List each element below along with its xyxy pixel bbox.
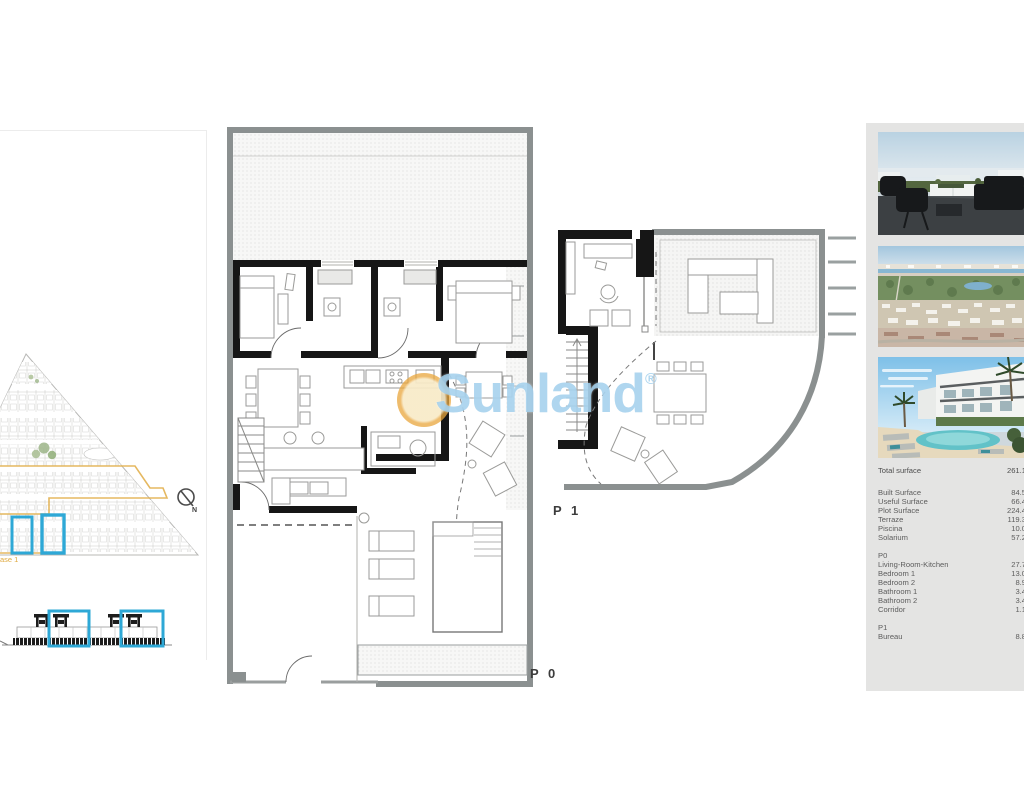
table-row: Living-Room-Kitchen27.7 xyxy=(878,560,1024,569)
row-label: Total surface xyxy=(878,466,921,475)
row-label: Useful Surface xyxy=(878,497,928,506)
walkway xyxy=(358,645,527,675)
ground-floor-label: P 0 xyxy=(530,666,558,681)
row-value: 13.0 xyxy=(1011,569,1024,578)
row-value: 57.2 xyxy=(1011,533,1024,542)
table-row: Terraze119.3 xyxy=(878,515,1024,524)
covered-terrace xyxy=(654,234,822,336)
photo-pool-residences xyxy=(878,357,1024,458)
table-row: Corridor1.1 xyxy=(878,605,1024,614)
stairs-p1 xyxy=(566,339,588,432)
elevation-strip xyxy=(0,598,200,656)
table-row: Built Surface84.5 xyxy=(878,488,1024,497)
row-value: 8.8 xyxy=(1015,632,1024,641)
row-label: Bathroom 2 xyxy=(878,596,917,605)
compass-icon: N xyxy=(178,489,197,514)
table-row: Bureau8.8 xyxy=(878,632,1024,641)
driveway xyxy=(232,516,357,682)
sofa xyxy=(272,478,346,504)
row-value: 1.1 xyxy=(1015,605,1024,614)
p0-rows-group: Living-Room-Kitchen27.7Bedroom 113.0Bedr… xyxy=(878,560,1024,614)
party-wall-ticks xyxy=(828,238,856,334)
row-value: 66.4 xyxy=(1011,497,1024,506)
table-row: Piscina10.0 xyxy=(878,524,1024,533)
table-row: Bathroom 23.4 xyxy=(878,596,1024,605)
row-value: 8.9 xyxy=(1015,578,1024,587)
photo-aerial-coast xyxy=(878,246,1024,347)
row-label: Piscina xyxy=(878,524,902,533)
row-value: 261.1 xyxy=(1007,466,1024,475)
table-row: Bedroom 28.9 xyxy=(878,578,1024,587)
photo-solarium-terrace xyxy=(878,132,1024,235)
row-label: Corridor xyxy=(878,605,905,614)
row-value: 119.3 xyxy=(1008,515,1024,524)
details-panel: Total surface 261.1 Built Surface84.5Use… xyxy=(866,123,1024,691)
row-label: Plot Surface xyxy=(878,506,919,515)
row-label: Terraze xyxy=(878,515,903,524)
bureau-furniture xyxy=(566,242,632,326)
site-plan: N ase 1 xyxy=(0,348,210,566)
kitchen-island xyxy=(264,432,364,470)
table-row: Solarium57.2 xyxy=(878,533,1024,542)
row-label: Built Surface xyxy=(878,488,921,497)
row-value: 27.7 xyxy=(1011,560,1024,569)
group-header-p1: P1 xyxy=(878,623,1024,632)
row-value: 224.4 xyxy=(1007,506,1024,515)
stairs xyxy=(238,418,264,482)
bedroom1-furniture xyxy=(448,281,520,343)
first-floor-plan xyxy=(556,226,862,502)
table-row: Useful Surface66.4 xyxy=(878,497,1024,506)
table-row: Total surface 261.1 xyxy=(878,466,1024,475)
phase-label: ase 1 xyxy=(0,555,18,564)
table-row: Bedroom 113.0 xyxy=(878,569,1024,578)
row-value: 84.5 xyxy=(1011,488,1024,497)
ground-floor-plan xyxy=(226,126,534,692)
kitchen-counter xyxy=(344,366,441,388)
row-label: Solarium xyxy=(878,533,908,542)
bedroom2-furniture xyxy=(240,274,295,338)
row-label: Bedroom 1 xyxy=(878,569,915,578)
surface-table: Total surface 261.1 Built Surface84.5Use… xyxy=(878,466,1024,641)
row-label: Living-Room-Kitchen xyxy=(878,560,948,569)
compass-north-label: N xyxy=(192,507,197,514)
left-sheet-edge-horizontal xyxy=(0,130,206,131)
row-label: Bureau xyxy=(878,632,903,641)
outdoor-dining xyxy=(654,362,706,424)
row-value: 3.4 xyxy=(1015,587,1024,596)
row-value: 3.4 xyxy=(1015,596,1024,605)
back-terrace xyxy=(233,133,527,260)
outdoor-loungers xyxy=(611,427,678,484)
table-row: Bathroom 13.4 xyxy=(878,587,1024,596)
row-label: Bathroom 1 xyxy=(878,587,917,596)
pool-area xyxy=(359,513,502,632)
surfaces-group: Built Surface84.5Useful Surface66.4Plot … xyxy=(878,488,1024,542)
row-label: Bedroom 2 xyxy=(878,578,915,587)
first-floor-label: P 1 xyxy=(553,503,581,518)
p1-rows-group: Bureau8.8 xyxy=(878,632,1024,641)
row-value: 10.0 xyxy=(1011,524,1024,533)
table-row: Plot Surface224.4 xyxy=(878,506,1024,515)
group-header-p0: P0 xyxy=(878,551,1024,560)
